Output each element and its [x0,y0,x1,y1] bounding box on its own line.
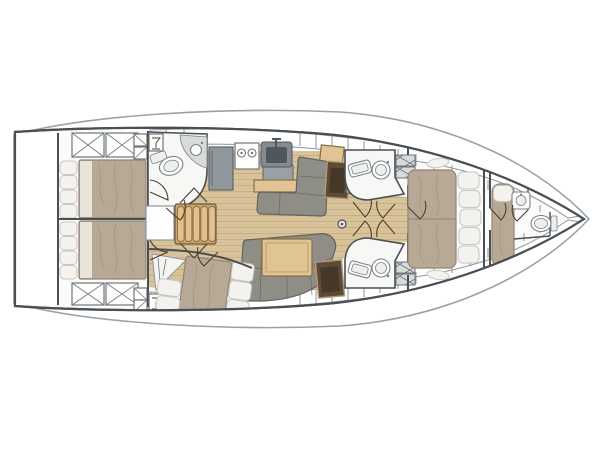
forward-island-berth [408,170,456,268]
forepeak-sink-icon [512,192,530,209]
aft-cabin-starboard [60,221,147,312]
aft-cabin-port [60,133,147,218]
forward-berth-headboard-cushions [458,172,481,263]
glassware-locker [149,134,163,151]
forepeak-berth [492,184,514,266]
forward-head-starboard [345,150,404,200]
aft-head-sink-icon [191,145,202,156]
aft-berth-starboard [60,221,146,279]
forward-head-port [345,238,404,288]
floorplan-canvas [0,0,600,450]
aft-berth-port [60,160,146,218]
stove-icon [235,143,259,169]
fridge-icon [209,147,233,190]
companionway [146,204,216,244]
aft-head-faucet-icon [201,142,203,144]
salon-table [262,239,312,276]
mast-post-icon [338,220,346,228]
yacht-floorplan [0,0,600,450]
galley-sink-icon [261,139,292,167]
transom-garage [16,133,58,305]
companionway-stairs [175,204,216,244]
forepeak-toilet-icon [531,216,557,232]
settee-back-counter [254,180,299,192]
nav-desk-port [315,260,344,298]
